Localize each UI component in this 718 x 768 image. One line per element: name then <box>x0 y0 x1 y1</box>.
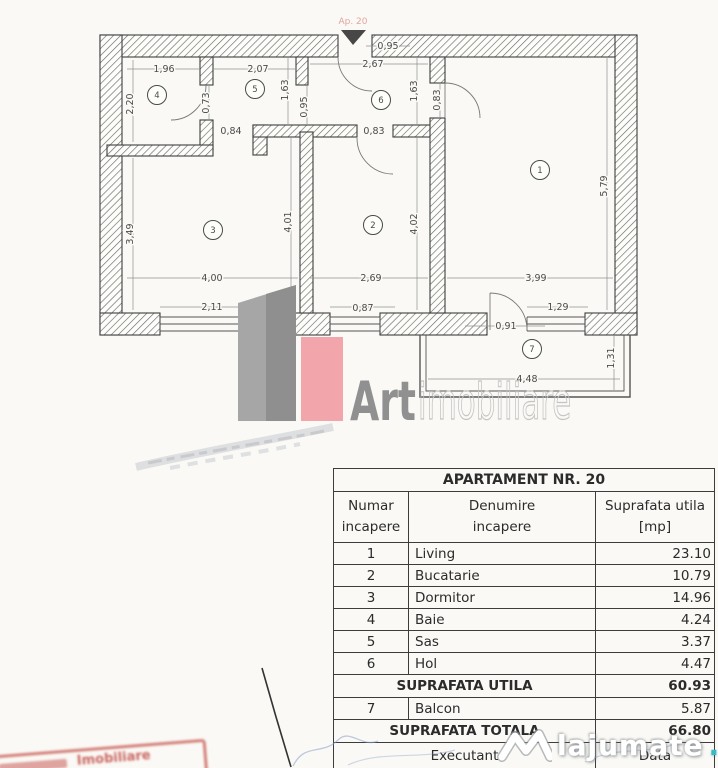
header-suprafata-utila: Suprafata utila [mp] <box>596 492 715 543</box>
agency-logo: Art imobiliare <box>238 285 571 433</box>
wall <box>430 118 445 313</box>
logo-pink-block <box>301 337 343 421</box>
room-name: Dormitor <box>409 587 596 609</box>
watermark-brand: lajumate <box>557 729 703 762</box>
room-number-1: 1 <box>531 161 550 180</box>
room-name: Balcon <box>409 698 596 720</box>
apartment-marker-label: Ap. 20 <box>338 17 367 27</box>
scanned-floor-plan-page: Ap. 20 0,95 1,96 2,07 2,67 2,20 0,73 1,6… <box>0 0 718 768</box>
wall <box>296 57 308 85</box>
room-name: Living <box>409 543 596 565</box>
room-name: Bucatarie <box>409 565 596 587</box>
dim-label: 1,63 <box>409 80 420 101</box>
svg-text:2: 2 <box>370 221 375 231</box>
room-nr: 2 <box>334 565 409 587</box>
room-number-6: 6 <box>372 91 391 110</box>
door-arcs <box>171 57 527 330</box>
dim-label: 1,63 <box>280 79 291 100</box>
wall <box>585 313 637 335</box>
useful-area-row: SUPRAFATA UTILA 60.93 <box>334 675 715 698</box>
table-row: 5 Sas 3.37 <box>334 631 715 653</box>
room-number-5: 5 <box>246 80 265 99</box>
entrance-arrow-icon <box>341 30 366 45</box>
wall <box>430 57 445 83</box>
dim-label: 0,91 <box>495 321 516 332</box>
dim-label: 0,83 <box>363 126 384 137</box>
table-row: 6 Hol 4.47 <box>334 653 715 675</box>
room-name: Hol <box>409 653 596 675</box>
svg-text:4: 4 <box>154 91 159 101</box>
svg-text:3: 3 <box>210 226 215 236</box>
balcony-row: 7 Balcon 5.87 <box>334 698 715 720</box>
room-area: 10.79 <box>596 565 715 587</box>
room-area: 4.47 <box>596 653 715 675</box>
wall <box>300 132 313 313</box>
table-header-row: Numar incapere Denumire incapere Suprafa… <box>334 492 715 543</box>
room-area: 5.87 <box>596 698 715 720</box>
svg-text:7: 7 <box>529 345 534 355</box>
room-nr: 7 <box>334 698 409 720</box>
room-nr: 6 <box>334 653 409 675</box>
room-name: Sas <box>409 631 596 653</box>
dim-label: 1,31 <box>606 347 617 368</box>
wall <box>200 57 213 85</box>
wall <box>100 35 338 57</box>
wall <box>100 35 122 335</box>
svg-text:5: 5 <box>252 85 257 95</box>
pen-stroke <box>262 668 291 767</box>
wall <box>107 145 213 156</box>
dim-label: 2,20 <box>125 93 136 114</box>
dim-label: 1,29 <box>547 302 568 313</box>
logo-word-imobiliare: imobiliare <box>418 372 571 431</box>
header-numar-incapere: Numar incapere <box>334 492 409 543</box>
stamp-text: Imobiliare <box>76 748 151 768</box>
room-area: 23.10 <box>596 543 715 565</box>
dim-label: 0,87 <box>352 303 373 314</box>
dim-label: 1,96 <box>153 64 174 75</box>
useful-area-value: 60.93 <box>596 675 715 698</box>
table-row: 3 Dormitor 14.96 <box>334 587 715 609</box>
windows <box>160 317 585 331</box>
dim-label: 0,95 <box>299 96 310 117</box>
useful-area-label: SUPRAFATA UTILA <box>334 675 596 698</box>
room-area: 4.24 <box>596 609 715 631</box>
room-nr: 5 <box>334 631 409 653</box>
table-row: 2 Bucatarie 10.79 <box>334 565 715 587</box>
lajumate-logo-icon <box>496 727 552 763</box>
gray-smudge <box>136 427 333 468</box>
wall <box>372 35 637 57</box>
walls <box>100 35 637 335</box>
wall <box>615 35 637 335</box>
wall <box>100 313 160 335</box>
svg-text:1: 1 <box>537 166 542 176</box>
stamp-illegible-text <box>0 759 67 768</box>
lajumate-watermark: lajumate.ro <box>496 723 718 767</box>
table-row: 4 Baie 4.24 <box>334 609 715 631</box>
logo-word-art: Art <box>350 370 416 433</box>
dim-label: 3,49 <box>125 223 136 244</box>
dim-label: 0,73 <box>201 92 212 113</box>
dim-label: 2,69 <box>360 273 381 284</box>
room-number-3: 3 <box>204 221 223 240</box>
dimension-labels: 0,95 1,96 2,07 2,67 2,20 0,73 1,63 0,95 … <box>125 41 617 385</box>
svg-text:6: 6 <box>378 96 383 106</box>
dim-label: 4,01 <box>283 211 294 232</box>
dim-label: 5,79 <box>599 175 610 196</box>
watermark-tld: .ro <box>708 729 718 762</box>
table-title-row: APARTAMENT NR. 20 <box>334 469 715 492</box>
room-number-7: 7 <box>523 340 542 359</box>
wall <box>380 313 487 335</box>
room-number-4: 4 <box>148 86 167 105</box>
room-name: Baie <box>409 609 596 631</box>
dim-label: 2,11 <box>201 302 222 313</box>
room-nr: 4 <box>334 609 409 631</box>
table-title: APARTAMENT NR. 20 <box>334 469 715 492</box>
header-denumire-incapere: Denumire incapere <box>409 492 596 543</box>
dim-label: 3,99 <box>525 273 546 284</box>
dim-label: 2,07 <box>247 64 268 75</box>
dim-label: 2,67 <box>362 59 383 70</box>
logo-flag-shade <box>266 285 296 421</box>
dim-label: 0,83 <box>432 89 443 110</box>
room-nr: 3 <box>334 587 409 609</box>
dim-label: 4,02 <box>409 213 420 234</box>
dim-label: 0,95 <box>377 41 398 52</box>
table-row: 1 Living 23.10 <box>334 543 715 565</box>
room-number-2: 2 <box>364 216 383 235</box>
room-area: 14.96 <box>596 587 715 609</box>
room-nr: 1 <box>334 543 409 565</box>
dim-label: 4,00 <box>201 273 222 284</box>
dim-label: 0,84 <box>220 126 241 137</box>
room-area: 3.37 <box>596 631 715 653</box>
